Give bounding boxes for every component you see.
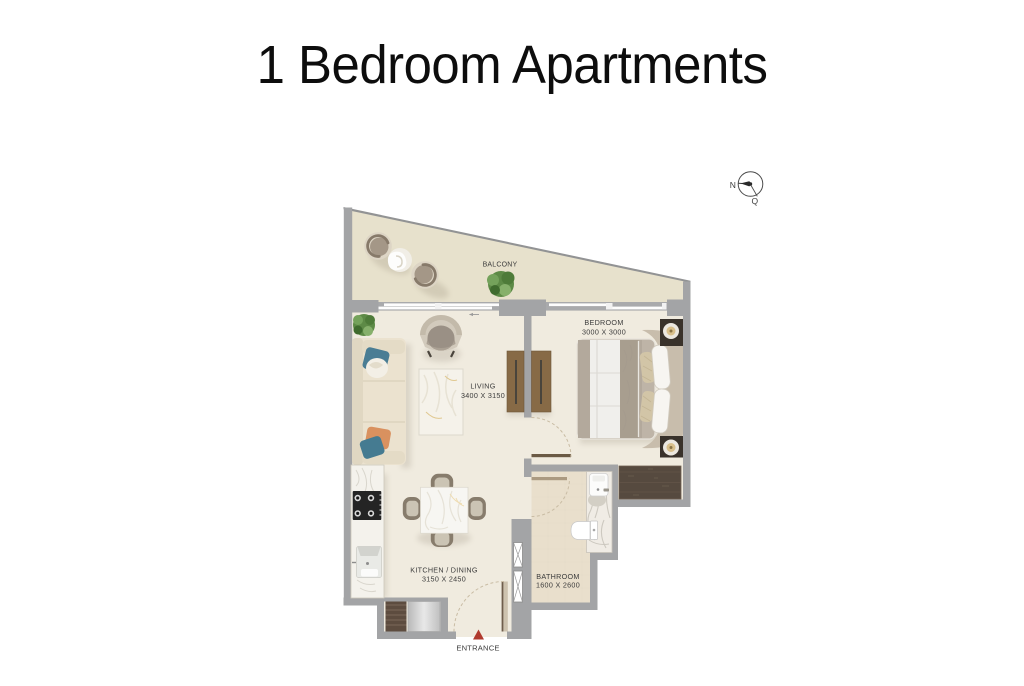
svg-text:LIVING: LIVING [470,382,495,391]
svg-text:3000 X 3000: 3000 X 3000 [582,328,626,337]
svg-text:N: N [730,180,736,190]
svg-text:3150 X 2450: 3150 X 2450 [422,575,466,584]
svg-text:BEDROOM: BEDROOM [584,318,623,327]
svg-text:1600 X 2600: 1600 X 2600 [536,581,580,590]
svg-text:Q: Q [751,196,758,206]
svg-text:KITCHEN / DINING: KITCHEN / DINING [410,566,478,575]
svg-text:3400 X 3150: 3400 X 3150 [461,391,505,400]
svg-text:BALCONY: BALCONY [483,262,518,269]
svg-text:ENTRANCE: ENTRANCE [456,644,499,653]
